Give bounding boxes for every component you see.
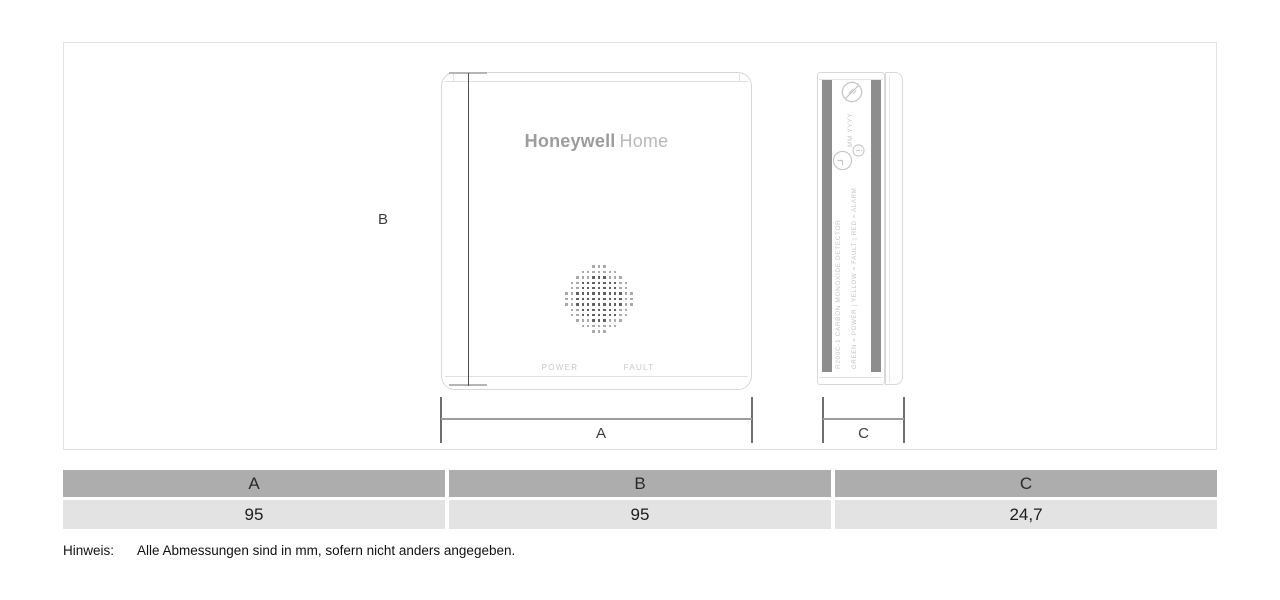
- side-gasket-strip-right: [871, 80, 881, 372]
- table-header-b: B: [449, 470, 831, 497]
- no-tools-icon: [841, 81, 863, 103]
- table-value-c: 24,7: [835, 500, 1217, 529]
- info-icon: [852, 144, 865, 157]
- dim-c-label: C: [823, 425, 904, 442]
- dim-a-tick-right: [751, 397, 753, 443]
- clock-icon: [832, 150, 853, 171]
- table-header-a: A: [63, 470, 445, 497]
- side-gasket-strip-left: [822, 80, 832, 372]
- power-led-label: POWER: [525, 363, 595, 372]
- device-front-view: HoneywellHome POWER FAULT: [441, 72, 752, 390]
- brand-logo-light: Home: [620, 131, 669, 151]
- diagram-panel: HoneywellHome POWER FAULT B A: [63, 42, 1217, 450]
- footnote-text: Alle Abmessungen sind in mm, sofern nich…: [137, 543, 515, 558]
- footnote: Hinweis: Alle Abmessungen sind in mm, so…: [63, 543, 515, 558]
- speaker-grille-icon: [564, 264, 634, 334]
- dim-a-tick-left: [440, 397, 442, 443]
- device-back-plate: [885, 72, 903, 385]
- front-top-bevel-line: [445, 81, 748, 82]
- side-led-legend-text: GREEN = POWER | YELLOW = FAULT | RED = A…: [851, 188, 859, 369]
- front-bottom-bevel-line: [445, 376, 748, 377]
- dimensions-table: A B C 95 95 24,7: [63, 470, 1217, 529]
- table-value-b: 95: [449, 500, 831, 529]
- side-model-text: R200C-1 CARBON MONOXIDE DETECTOR: [835, 220, 843, 369]
- fault-led-label: FAULT: [604, 363, 674, 372]
- footnote-label: Hinweis:: [63, 543, 137, 558]
- table-value-a: 95: [63, 500, 445, 529]
- dim-a-line: [441, 418, 752, 420]
- front-corner-tick-left: [453, 74, 454, 82]
- datasheet-page: HoneywellHome POWER FAULT B A: [0, 0, 1280, 600]
- back-plate-inner-line: [889, 75, 890, 382]
- side-top-bevel-line: [819, 79, 883, 80]
- dim-a-label: A: [561, 425, 641, 442]
- brand-logo-bold: Honeywell: [525, 131, 616, 151]
- dim-c-line: [823, 418, 904, 420]
- side-bottom-bevel-line: [819, 377, 883, 378]
- dim-b-label: B: [373, 211, 393, 228]
- dim-b-line: [468, 73, 469, 386]
- brand-logo: HoneywellHome: [442, 131, 751, 152]
- front-corner-tick-right: [739, 74, 740, 82]
- production-date-text: MM YYYY: [847, 113, 855, 147]
- table-header-c: C: [835, 470, 1217, 497]
